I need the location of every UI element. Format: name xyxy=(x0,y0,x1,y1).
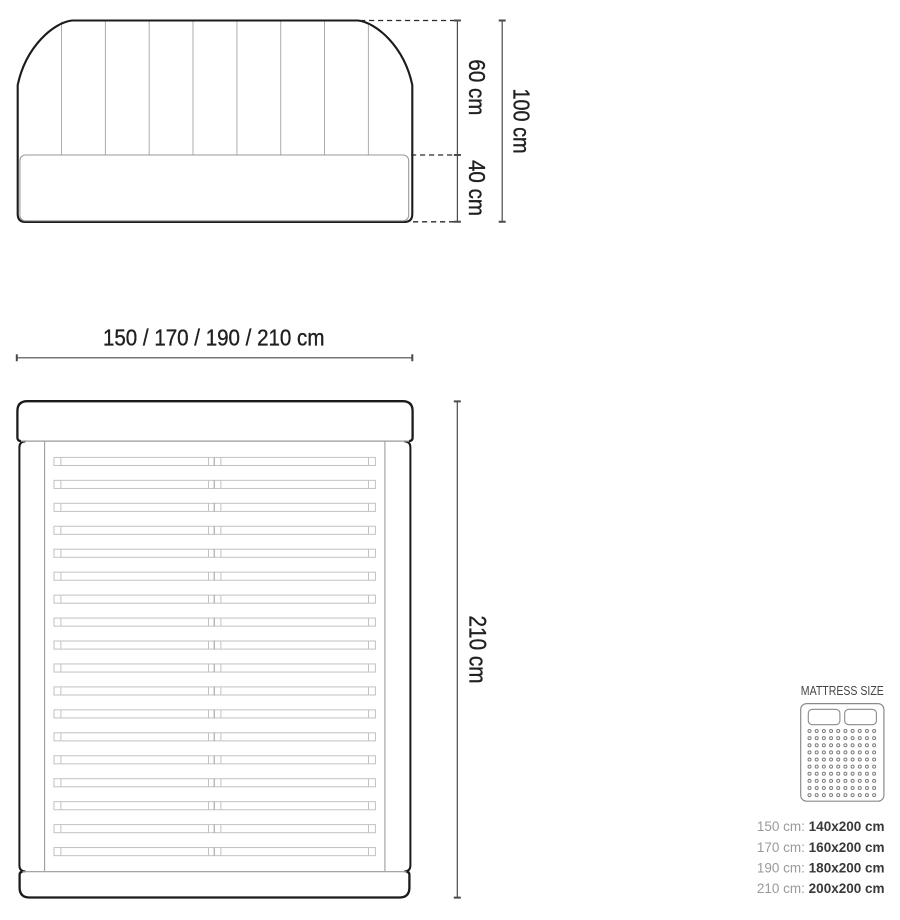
svg-text:MATTRESS SIZE: MATTRESS SIZE xyxy=(801,683,884,698)
svg-text:60 cm: 60 cm xyxy=(464,59,490,115)
svg-text:150 / 170 / 190 / 210 cm: 150 / 170 / 190 / 210 cm xyxy=(103,325,325,351)
svg-text:210 cm: 200x200 cm: 210 cm: 200x200 cm xyxy=(757,881,885,896)
svg-text:40 cm: 40 cm xyxy=(464,160,490,216)
svg-text:150 cm: 140x200 cm: 150 cm: 140x200 cm xyxy=(757,819,885,834)
svg-text:210 cm: 210 cm xyxy=(464,616,491,684)
svg-text:190 cm: 180x200 cm: 190 cm: 180x200 cm xyxy=(757,861,885,876)
svg-text:100 cm: 100 cm xyxy=(509,89,535,154)
svg-text:170 cm: 160x200 cm: 170 cm: 160x200 cm xyxy=(757,840,885,855)
